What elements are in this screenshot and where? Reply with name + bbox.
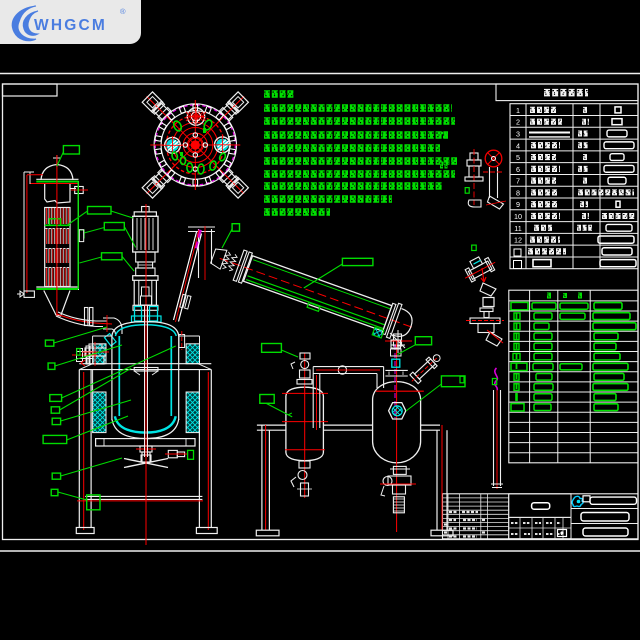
svg-text:WHGCM: WHGCM [34,17,107,34]
svg-text:6: 6 [516,165,520,174]
svg-text:11: 11 [514,224,521,233]
svg-text:4: 4 [516,141,520,150]
svg-text:7: 7 [516,177,520,186]
svg-text:®: ® [120,7,126,16]
svg-text:2: 2 [516,118,520,127]
svg-text:5: 5 [516,153,520,162]
svg-text:10: 10 [514,212,522,221]
svg-text:1: 1 [516,106,520,115]
svg-text:3: 3 [516,129,520,138]
svg-text:9: 9 [516,200,520,209]
svg-text:12: 12 [514,236,522,245]
svg-text:8: 8 [516,188,520,197]
